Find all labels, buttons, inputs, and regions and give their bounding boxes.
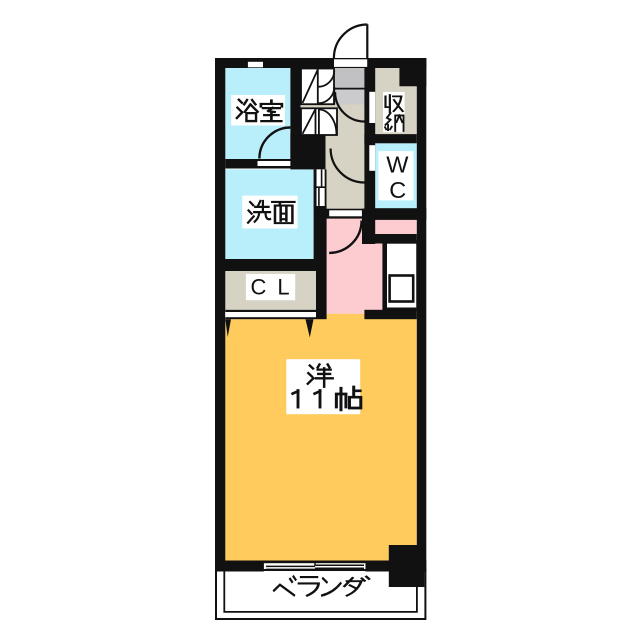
svg-text:W: W xyxy=(386,151,409,177)
svg-text:C: C xyxy=(389,177,406,203)
svg-text:L: L xyxy=(277,275,289,300)
svg-text:C: C xyxy=(251,275,267,300)
